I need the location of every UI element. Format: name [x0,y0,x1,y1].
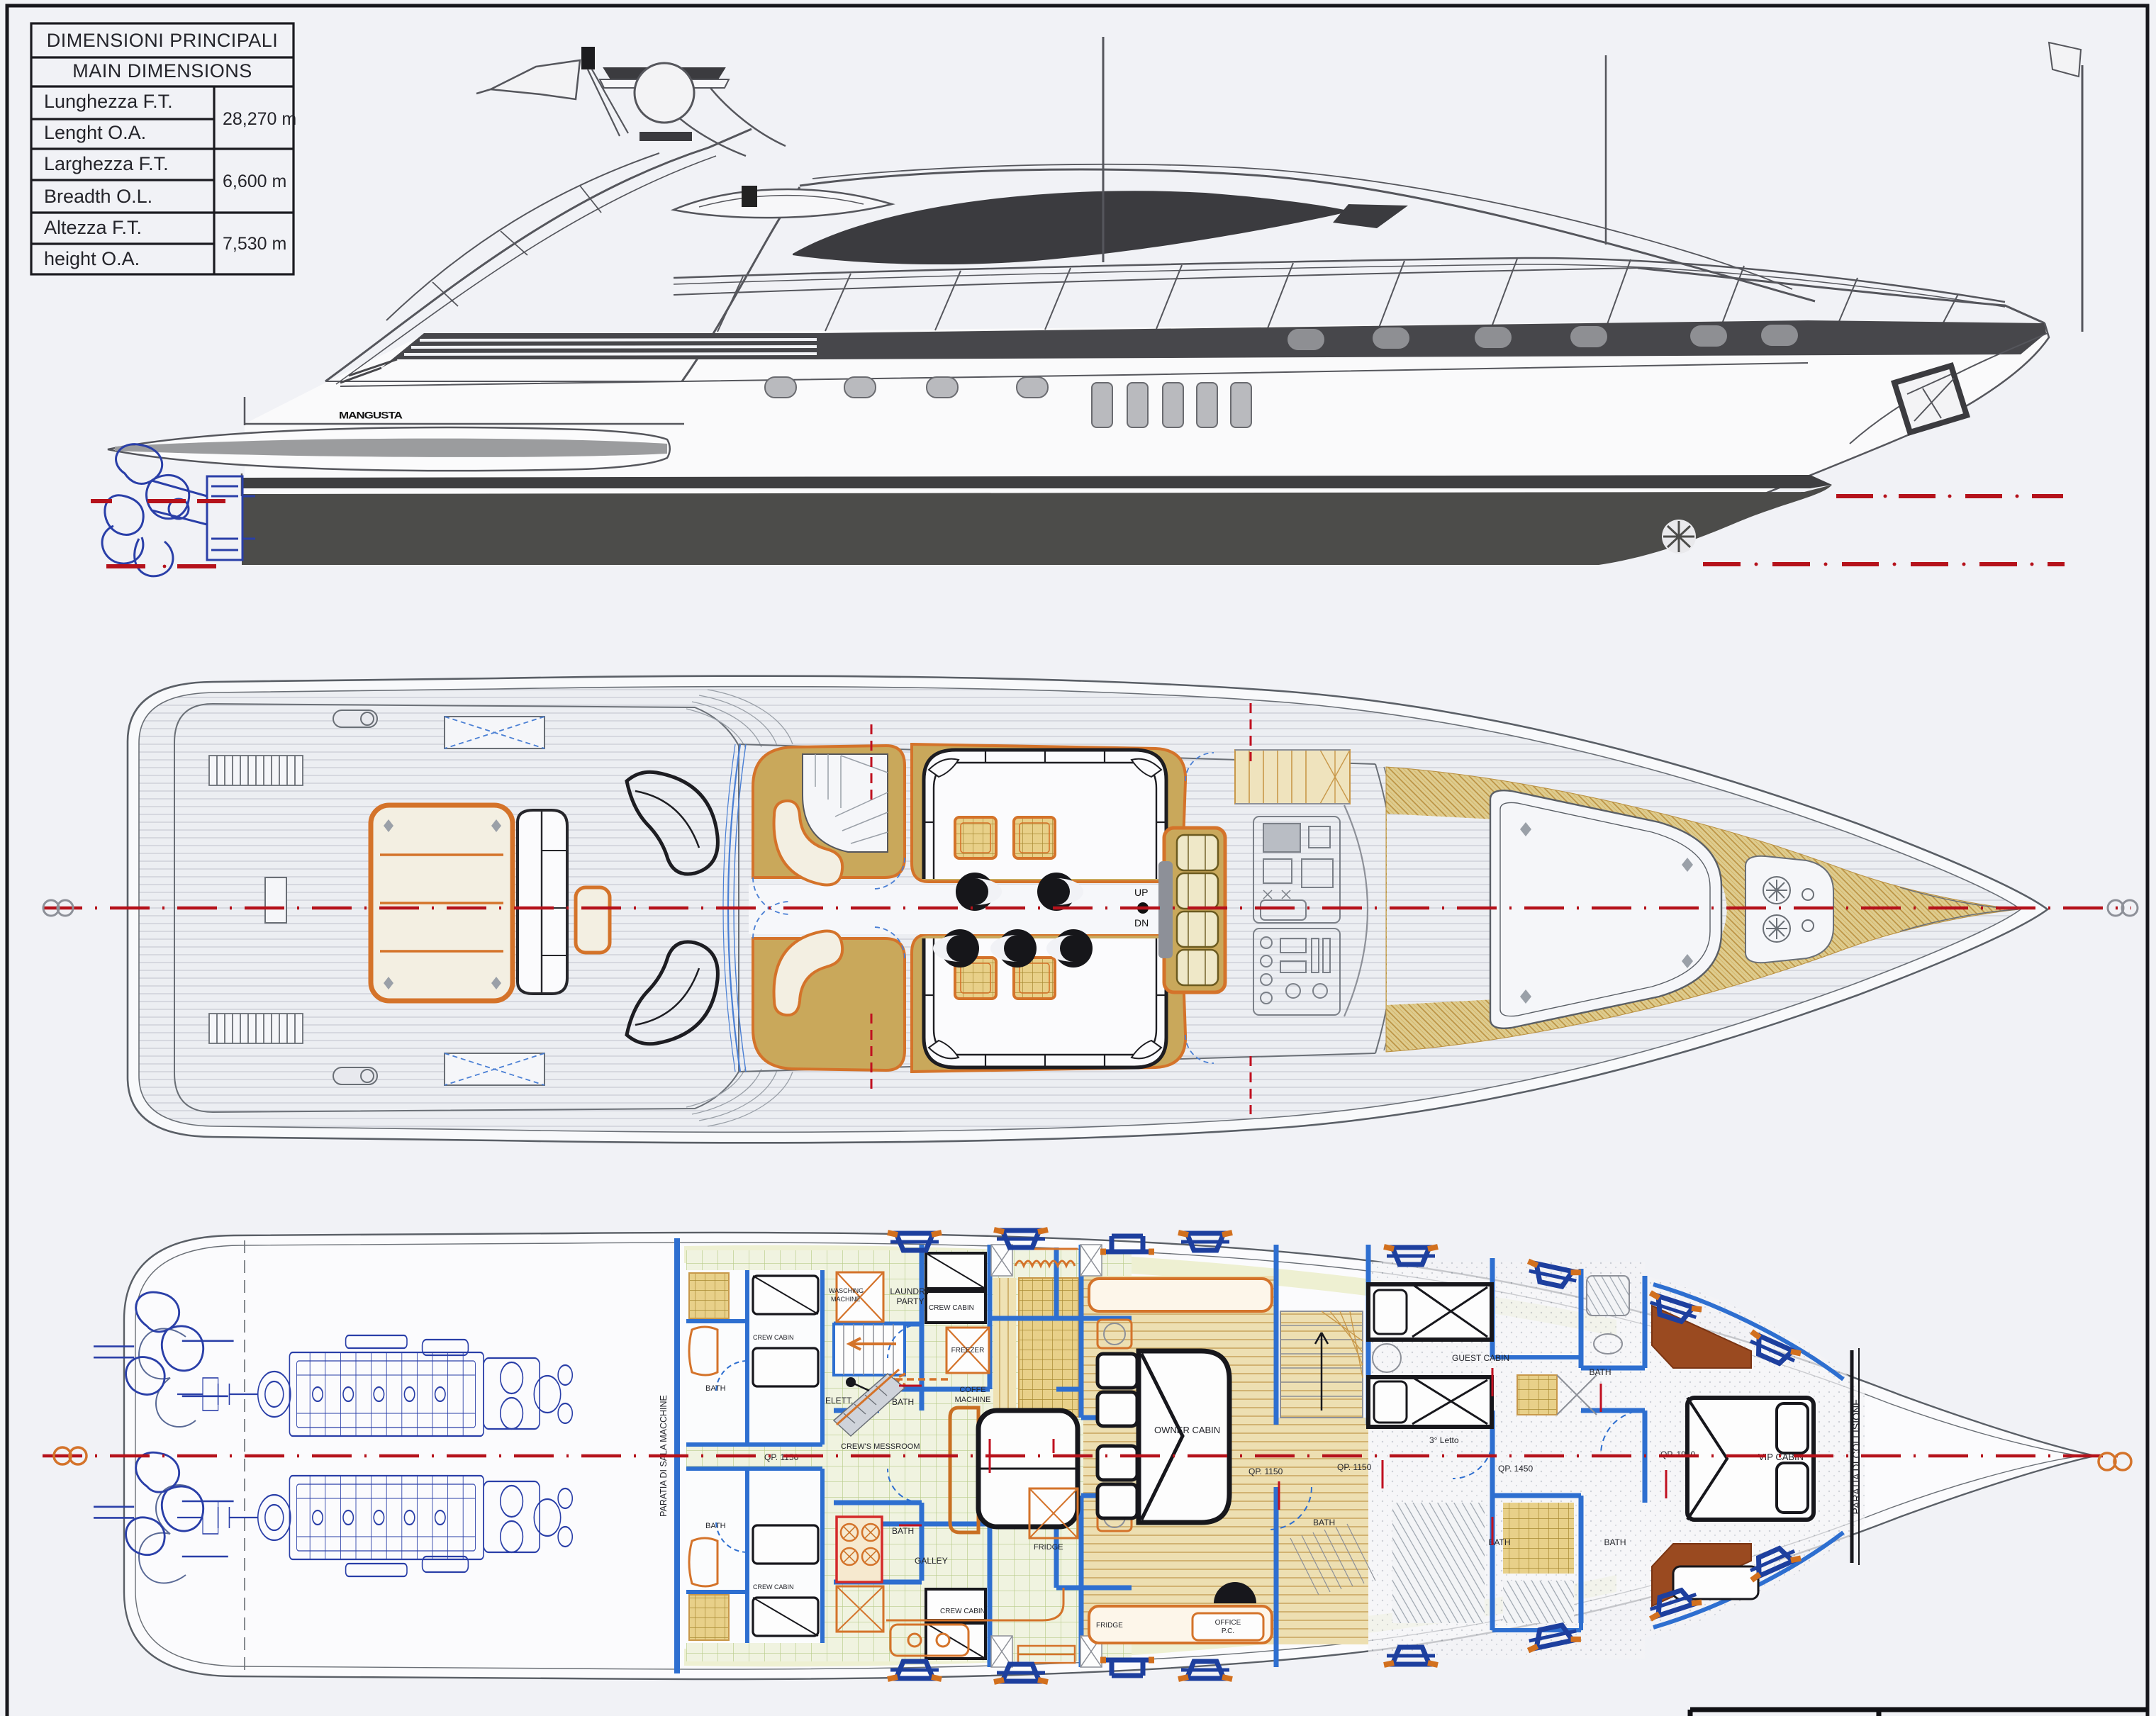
svg-text:P.C.: P.C. [1222,1627,1234,1635]
svg-text:UP: UP [1134,887,1148,898]
svg-text:6,600 m: 6,600 m [223,172,286,191]
svg-text:CREW CABIN: CREW CABIN [753,1334,794,1341]
svg-text:QP. 1150: QP. 1150 [1337,1462,1372,1472]
svg-text:BATH: BATH [892,1397,914,1407]
svg-text:BATH: BATH [1313,1518,1335,1527]
svg-text:MACHINE: MACHINE [955,1396,991,1404]
svg-text:Altezza F.T.: Altezza F.T. [44,217,142,238]
svg-text:MANGUSTA: MANGUSTA [339,410,403,421]
svg-text:BATH: BATH [1604,1537,1626,1547]
svg-text:28,270 m: 28,270 m [223,109,296,129]
svg-text:DN: DN [1134,917,1149,929]
svg-text:Lenght O.A.: Lenght O.A. [44,122,146,143]
svg-text:FRIDGE: FRIDGE [1096,1622,1123,1630]
svg-text:MAIN DIMENSIONS: MAIN DIMENSIONS [72,60,252,82]
svg-text:PARATIA DI COLLISIONE: PARATIA DI COLLISIONE [1850,1399,1862,1515]
svg-text:BATH: BATH [1589,1367,1611,1377]
svg-text:Lunghezza F.T.: Lunghezza F.T. [44,91,173,112]
svg-text:DIMENSIONI PRINCIPALI: DIMENSIONI PRINCIPALI [47,30,279,51]
svg-text:ELETT.: ELETT. [825,1396,853,1406]
svg-text:MACHINE: MACHINE [831,1296,861,1303]
svg-text:FREEZER: FREEZER [951,1347,985,1355]
svg-text:OWNER CABIN: OWNER CABIN [1154,1425,1220,1435]
svg-text:Breadth O.L.: Breadth O.L. [44,186,152,207]
svg-text:7,530 m: 7,530 m [223,234,286,254]
svg-text:CREW CABIN: CREW CABIN [929,1304,974,1312]
svg-text:COFFE: COFFE [959,1386,985,1394]
svg-text:CREW CABIN: CREW CABIN [940,1608,985,1615]
svg-text:CREW'S MESSROOM: CREW'S MESSROOM [841,1442,920,1451]
svg-text:PARTY: PARTY [897,1296,925,1306]
svg-text:GUEST CABIN: GUEST CABIN [1452,1353,1509,1363]
svg-text:QP. 1450: QP. 1450 [1498,1464,1533,1474]
svg-text:LAUNDRY: LAUNDRY [890,1286,930,1296]
svg-text:FRIDGE: FRIDGE [1034,1543,1063,1552]
svg-text:BATH: BATH [892,1526,914,1536]
svg-text:QP. 1150: QP. 1150 [1249,1467,1283,1476]
svg-text:GALLEY: GALLEY [915,1556,948,1566]
svg-text:3° Letto: 3° Letto [1429,1435,1459,1445]
svg-text:height O.A.: height O.A. [44,248,140,269]
svg-text:WASCHING: WASCHING [829,1287,864,1294]
svg-text:Larghezza F.T.: Larghezza F.T. [44,153,169,174]
svg-text:CREW CABIN: CREW CABIN [753,1583,794,1591]
svg-text:OFFICE: OFFICE [1215,1619,1241,1627]
